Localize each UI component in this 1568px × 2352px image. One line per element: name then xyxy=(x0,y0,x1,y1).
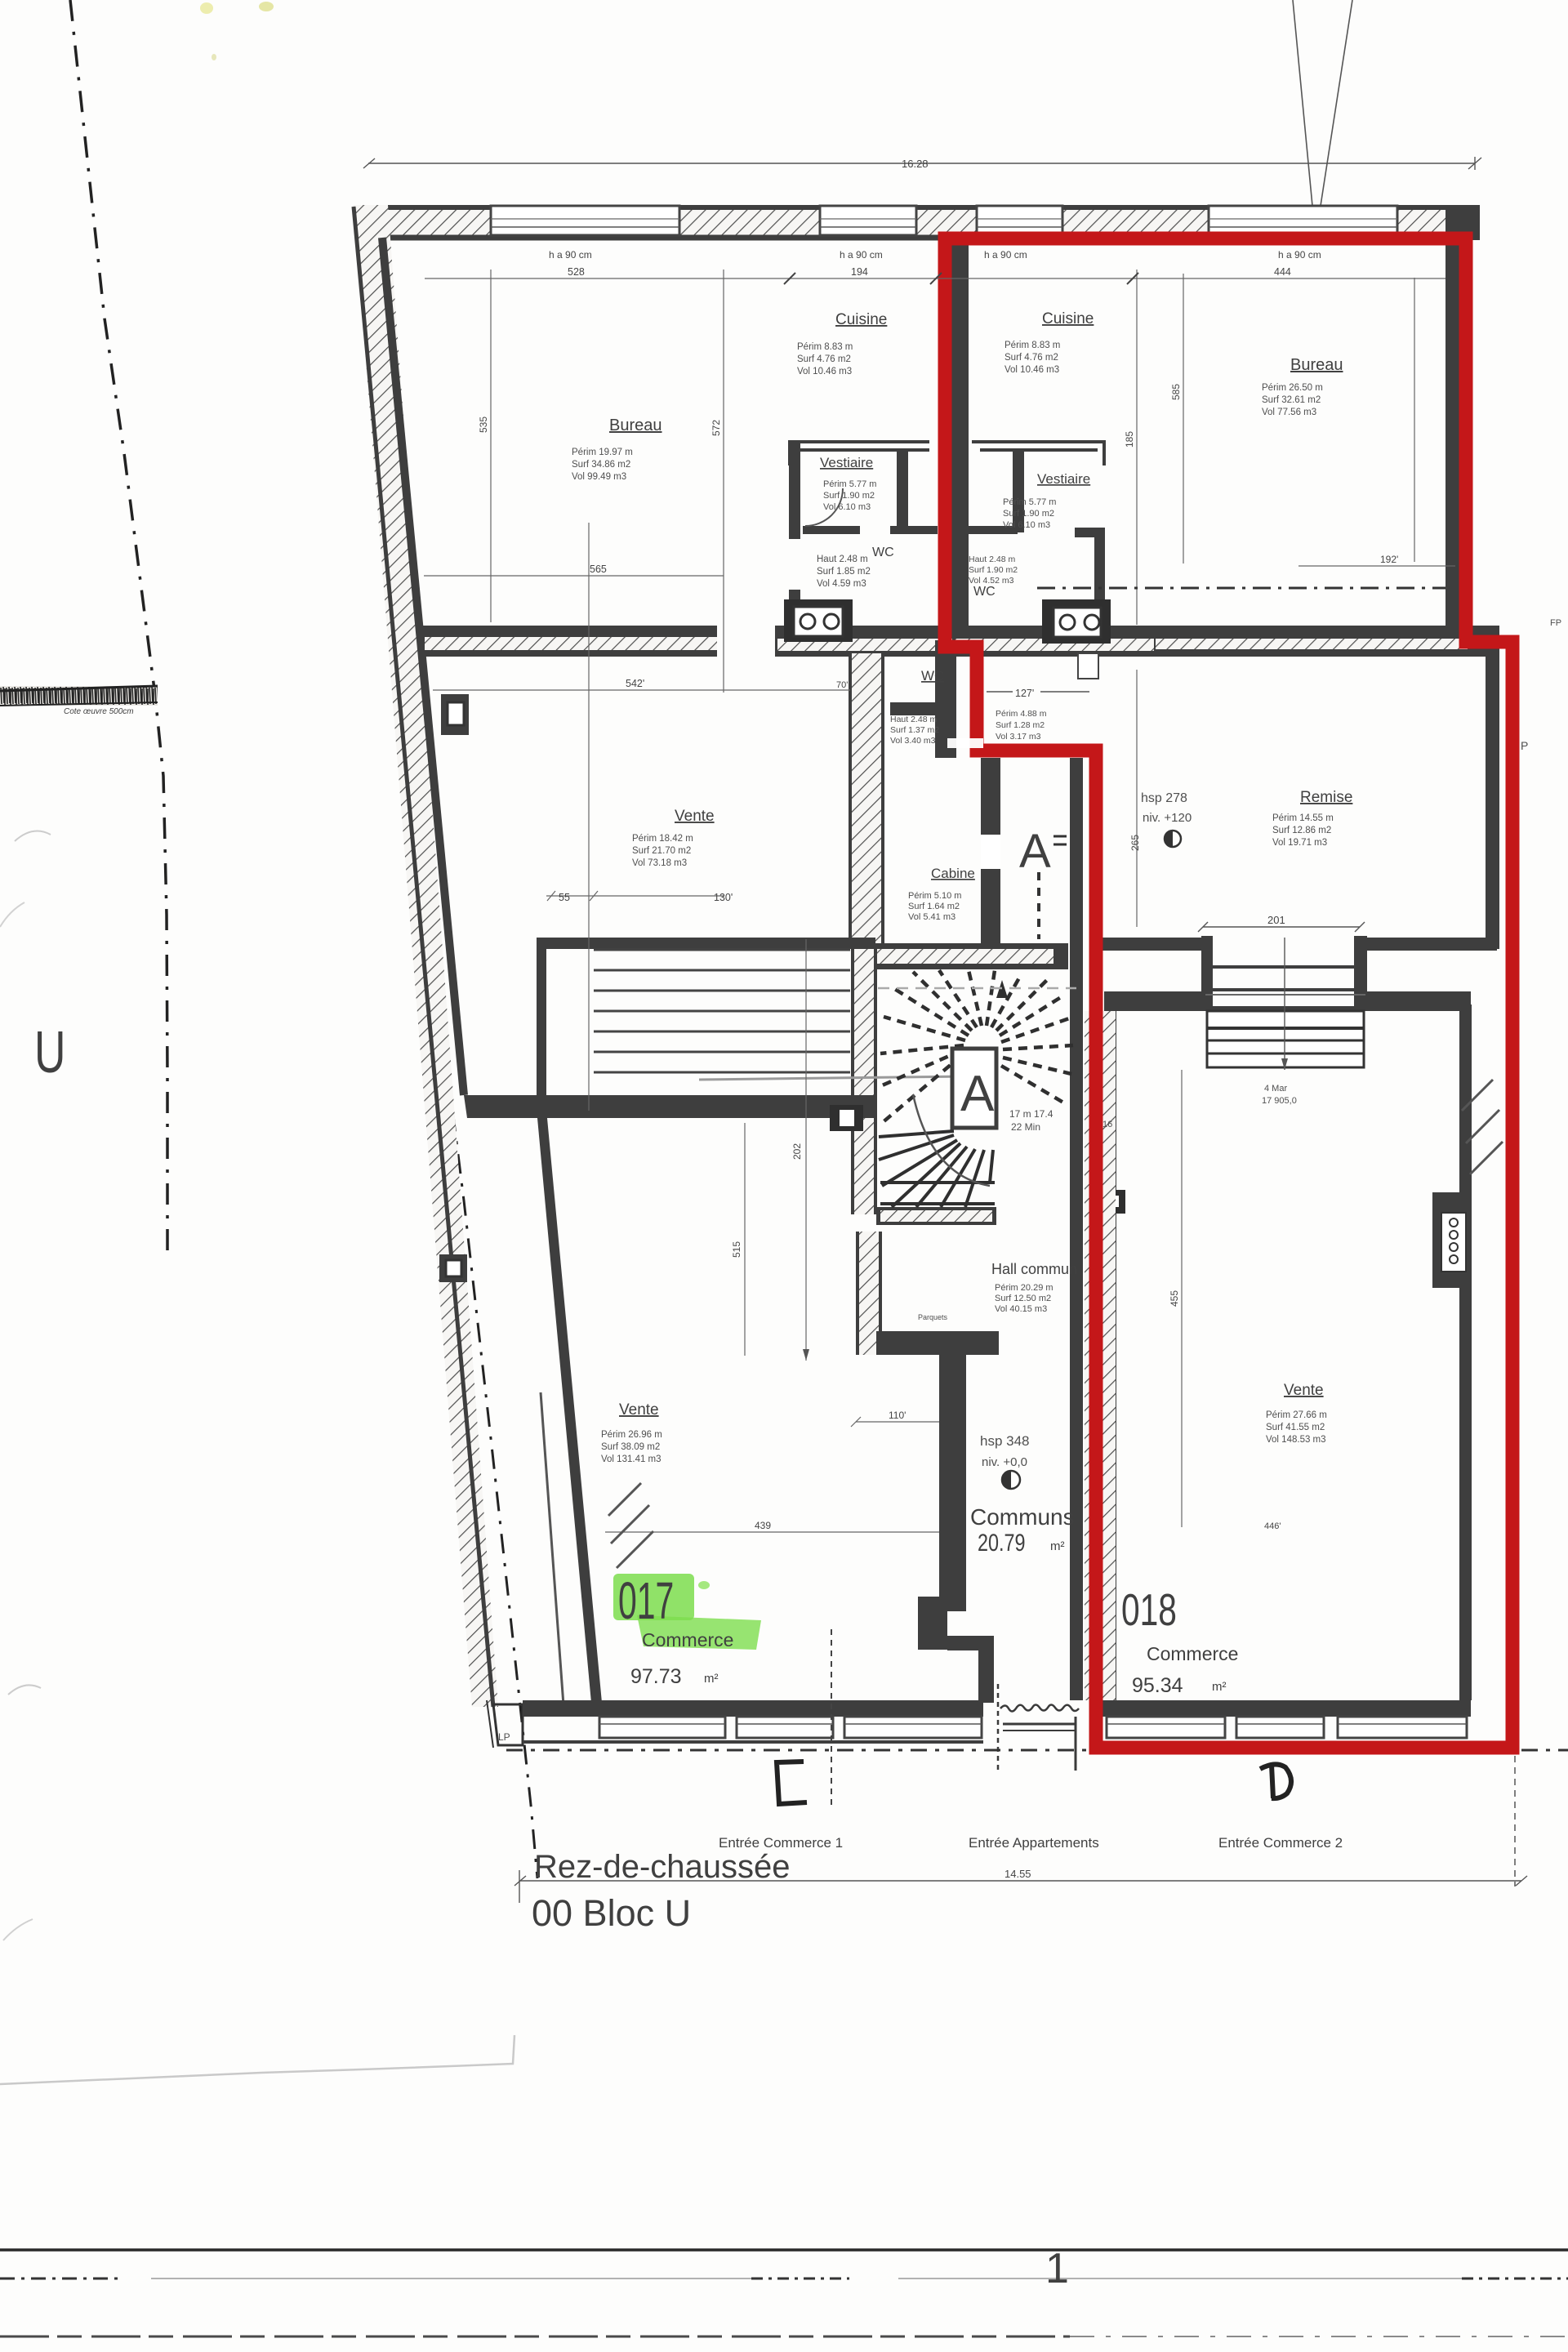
svg-text:Vol 10.46 m3: Vol 10.46 m3 xyxy=(1004,365,1059,375)
svg-text:Cuisine: Cuisine xyxy=(835,311,887,328)
svg-text:FP: FP xyxy=(1550,618,1561,628)
svg-text:55: 55 xyxy=(559,892,570,903)
svg-text:14.55: 14.55 xyxy=(1004,1868,1031,1880)
svg-text:Surf 1.28 m2: Surf 1.28 m2 xyxy=(996,720,1045,730)
svg-text:Vol 5.41 m3: Vol 5.41 m3 xyxy=(908,912,955,922)
svg-text:110': 110' xyxy=(889,1410,906,1421)
svg-text:Cote œuvre 500cm: Cote œuvre 500cm xyxy=(64,707,134,716)
svg-text:455: 455 xyxy=(1169,1290,1180,1307)
svg-text:LP: LP xyxy=(498,1731,510,1743)
svg-text:WC: WC xyxy=(921,668,944,684)
svg-text:Vol 73.18 m3: Vol 73.18 m3 xyxy=(632,858,687,868)
svg-text:Périm 5.10 m: Périm 5.10 m xyxy=(908,891,961,901)
svg-text:WC: WC xyxy=(872,546,894,559)
svg-text:Surf 12.86 m2: Surf 12.86 m2 xyxy=(1272,826,1331,835)
svg-text:Cabine: Cabine xyxy=(931,866,975,881)
svg-text:Entrée Appartements: Entrée Appartements xyxy=(969,1835,1099,1851)
svg-text:17 m 17.4: 17 m 17.4 xyxy=(1009,1108,1053,1120)
svg-text:265: 265 xyxy=(1129,835,1141,851)
svg-text:Bureau: Bureau xyxy=(609,416,662,434)
svg-text:m²: m² xyxy=(1050,1539,1065,1553)
svg-text:Surf 41.55 m2: Surf 41.55 m2 xyxy=(1266,1423,1325,1432)
svg-text:Vol 6.10 m3: Vol 6.10 m3 xyxy=(1003,520,1050,530)
svg-text:565: 565 xyxy=(590,563,607,575)
svg-text:22 Min: 22 Min xyxy=(1011,1121,1040,1133)
svg-text:515: 515 xyxy=(731,1241,742,1258)
svg-text:Périm 5.77 m: Périm 5.77 m xyxy=(1003,497,1056,507)
svg-text:Vol 99.49 m3: Vol 99.49 m3 xyxy=(572,472,626,482)
svg-text:WC: WC xyxy=(973,585,996,599)
svg-text:Surf 4.76 m2: Surf 4.76 m2 xyxy=(797,354,851,364)
svg-text:Surf 1.90 m2: Surf 1.90 m2 xyxy=(823,491,875,501)
svg-text:201: 201 xyxy=(1267,914,1285,926)
svg-text:Vol 19.71 m3: Vol 19.71 m3 xyxy=(1272,838,1327,848)
svg-text:Périm 4.88 m: Périm 4.88 m xyxy=(996,709,1047,719)
svg-text:Surf 1.90 m2: Surf 1.90 m2 xyxy=(969,565,1018,575)
svg-text:439: 439 xyxy=(755,1520,771,1531)
svg-text:017: 017 xyxy=(618,1572,674,1630)
svg-text:572: 572 xyxy=(710,420,722,436)
svg-text:16.28: 16.28 xyxy=(902,158,929,170)
svg-text:Haut 2.48 m: Haut 2.48 m xyxy=(890,715,937,724)
svg-text:70': 70' xyxy=(836,680,848,690)
svg-text:Périm 8.83 m: Périm 8.83 m xyxy=(797,342,853,352)
svg-text:Rez-de-chaussée: Rez-de-chaussée xyxy=(534,1849,791,1885)
svg-text:Surf 34.86 m2: Surf 34.86 m2 xyxy=(572,460,630,470)
svg-text:00 Bloc U: 00 Bloc U xyxy=(532,1892,691,1934)
svg-text:Périm 26.50 m: Périm 26.50 m xyxy=(1262,383,1323,393)
svg-text:202: 202 xyxy=(791,1143,803,1160)
svg-text:444: 444 xyxy=(1274,266,1291,278)
svg-text:Surf 32.61 m2: Surf 32.61 m2 xyxy=(1262,395,1321,405)
svg-text:Surf 4.76 m2: Surf 4.76 m2 xyxy=(1004,353,1058,363)
svg-text:528: 528 xyxy=(568,266,585,278)
svg-text:niv. +120: niv. +120 xyxy=(1143,811,1192,825)
svg-text:17 905,0: 17 905,0 xyxy=(1262,1096,1297,1106)
svg-text:Périm 18.42 m: Périm 18.42 m xyxy=(632,834,693,844)
svg-text:Périm 14.55 m: Périm 14.55 m xyxy=(1272,813,1334,823)
svg-text:Surf 1.90 m2: Surf 1.90 m2 xyxy=(1003,509,1054,519)
svg-text:Périm 20.29 m: Périm 20.29 m xyxy=(995,1283,1053,1293)
svg-text:niv. +0,0: niv. +0,0 xyxy=(982,1455,1027,1469)
svg-text:Vol 3.40 m3: Vol 3.40 m3 xyxy=(890,736,936,746)
svg-text:Surf 1.37 m2: Surf 1.37 m2 xyxy=(890,725,939,735)
svg-text:4 Mar: 4 Mar xyxy=(1264,1084,1287,1094)
svg-text:Vol 77.56 m3: Vol 77.56 m3 xyxy=(1262,408,1316,417)
svg-text:Vol 131.41 m3: Vol 131.41 m3 xyxy=(601,1454,661,1464)
svg-text:Vol 3.17 m3: Vol 3.17 m3 xyxy=(996,732,1041,742)
svg-text:h a 90 cm: h a 90 cm xyxy=(1278,249,1321,261)
svg-text:1: 1 xyxy=(1045,2245,1069,2292)
svg-text:Vestiaire: Vestiaire xyxy=(1037,471,1090,487)
svg-text:Hall commun: Hall commun xyxy=(991,1261,1077,1277)
svg-text:Périm 27.66 m: Périm 27.66 m xyxy=(1266,1410,1327,1420)
svg-text:Périm 26.96 m: Périm 26.96 m xyxy=(601,1430,662,1440)
svg-text:Cuisine: Cuisine xyxy=(1042,310,1094,327)
svg-text:Vente: Vente xyxy=(675,808,715,825)
svg-text:A: A xyxy=(1019,825,1051,878)
svg-text:Vente: Vente xyxy=(619,1401,659,1419)
svg-text:Périm 5.77 m: Périm 5.77 m xyxy=(823,479,876,489)
svg-text:Surf 1.85 m2: Surf 1.85 m2 xyxy=(817,567,871,577)
svg-text:127': 127' xyxy=(1015,688,1034,699)
svg-text:95.34: 95.34 xyxy=(1132,1674,1183,1697)
svg-text:P: P xyxy=(1521,739,1528,752)
svg-text:130': 130' xyxy=(714,892,733,903)
svg-text:Vol 4.59 m3: Vol 4.59 m3 xyxy=(817,579,866,589)
svg-text:Communs: Communs xyxy=(970,1504,1075,1530)
svg-text:Commerce: Commerce xyxy=(642,1629,733,1650)
svg-text:16: 16 xyxy=(1102,1120,1112,1129)
svg-text:Surf 12.50 m2: Surf 12.50 m2 xyxy=(995,1294,1051,1303)
svg-text:h a 90 cm: h a 90 cm xyxy=(549,249,592,261)
svg-text:A: A xyxy=(960,1066,995,1122)
svg-text:97.73: 97.73 xyxy=(630,1665,682,1688)
svg-text:hsp 278: hsp 278 xyxy=(1141,791,1187,805)
svg-text:185: 185 xyxy=(1124,431,1135,448)
svg-text:Vol 148.53 m3: Vol 148.53 m3 xyxy=(1266,1435,1326,1445)
svg-text:Haut 2.48 m: Haut 2.48 m xyxy=(969,555,1015,564)
svg-text:U: U xyxy=(34,1020,65,1085)
svg-text:Vol 10.46 m3: Vol 10.46 m3 xyxy=(797,367,852,376)
svg-text:Vol 40.15 m3: Vol 40.15 m3 xyxy=(995,1304,1047,1314)
svg-text:h a 90 cm: h a 90 cm xyxy=(984,249,1027,261)
svg-text:Surf 38.09 m2: Surf 38.09 m2 xyxy=(601,1442,660,1452)
svg-text:542': 542' xyxy=(626,678,644,689)
svg-text:018: 018 xyxy=(1121,1585,1177,1635)
svg-text:20.79: 20.79 xyxy=(978,1529,1026,1556)
svg-text:hsp 348: hsp 348 xyxy=(980,1433,1030,1449)
svg-text:Parquets: Parquets xyxy=(918,1313,948,1321)
svg-text:Périm 19.97 m: Périm 19.97 m xyxy=(572,448,633,457)
svg-text:Périm 8.83 m: Périm 8.83 m xyxy=(1004,341,1060,350)
svg-text:Commerce: Commerce xyxy=(1147,1643,1238,1664)
svg-text:Bureau: Bureau xyxy=(1290,356,1343,374)
svg-text:585: 585 xyxy=(1170,384,1182,400)
svg-text:535: 535 xyxy=(478,416,489,433)
svg-text:Vestiaire: Vestiaire xyxy=(820,455,873,470)
svg-text:446': 446' xyxy=(1264,1521,1281,1531)
svg-text:m²: m² xyxy=(704,1672,719,1686)
svg-text:Surf 21.70 m2: Surf 21.70 m2 xyxy=(632,846,691,856)
svg-text:Vente: Vente xyxy=(1284,1382,1324,1399)
svg-text:Vol 6.10 m3: Vol 6.10 m3 xyxy=(823,502,871,512)
svg-text:Haut 2.48 m: Haut 2.48 m xyxy=(817,555,868,564)
svg-text:194: 194 xyxy=(851,266,868,278)
svg-text:Surf 1.64 m2: Surf 1.64 m2 xyxy=(908,902,960,911)
svg-text:Entrée Commerce 2: Entrée Commerce 2 xyxy=(1218,1835,1343,1851)
svg-text:Remise: Remise xyxy=(1300,789,1352,806)
svg-text:m²: m² xyxy=(1212,1680,1227,1694)
svg-text:h a 90 cm: h a 90 cm xyxy=(840,249,883,261)
svg-text:192': 192' xyxy=(1380,554,1398,565)
